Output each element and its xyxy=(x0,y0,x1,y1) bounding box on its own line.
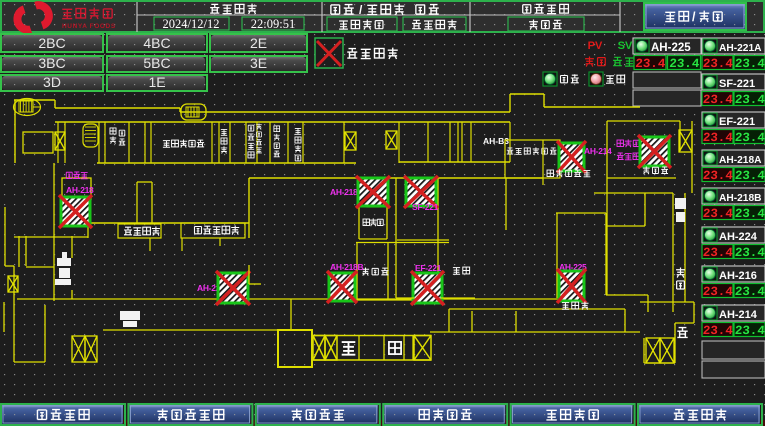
svg-text:1E: 1E xyxy=(148,74,165,90)
svg-text:23.4: 23.4 xyxy=(734,207,765,221)
svg-text:23.4: 23.4 xyxy=(702,246,733,260)
svg-text:2BC: 2BC xyxy=(38,35,65,51)
svg-text:22:09:51: 22:09:51 xyxy=(251,17,295,31)
svg-text:AH-218A: AH-218A xyxy=(719,155,762,166)
svg-text:AH-214: AH-214 xyxy=(584,146,612,156)
svg-text:23.4: 23.4 xyxy=(702,207,733,221)
svg-text:23.4: 23.4 xyxy=(702,57,733,71)
svg-text:3BC: 3BC xyxy=(38,55,65,71)
svg-text:23.4: 23.4 xyxy=(734,93,765,107)
svg-text:23.4: 23.4 xyxy=(702,131,733,145)
svg-text:HUNYA FOODS: HUNYA FOODS xyxy=(62,23,116,30)
svg-text:SF-221: SF-221 xyxy=(412,202,439,212)
svg-text:/: / xyxy=(692,10,696,24)
svg-text:AH-218B: AH-218B xyxy=(719,193,761,204)
svg-text:2E: 2E xyxy=(250,35,267,51)
svg-text:23.4: 23.4 xyxy=(702,169,733,183)
svg-text:AH-218: AH-218 xyxy=(66,185,94,195)
svg-text:23.4: 23.4 xyxy=(702,285,733,299)
svg-text:2024/12/12: 2024/12/12 xyxy=(163,17,220,31)
svg-text:3E: 3E xyxy=(250,55,267,71)
svg-text:AH-214: AH-214 xyxy=(719,309,758,321)
svg-text:AH-218B: AH-218B xyxy=(330,262,363,272)
svg-text:EF-221: EF-221 xyxy=(719,116,755,128)
svg-text:SV: SV xyxy=(618,40,633,52)
svg-text:PV: PV xyxy=(588,40,603,52)
svg-text:23.4: 23.4 xyxy=(702,324,733,338)
svg-text:AH-221A: AH-221A xyxy=(719,43,762,54)
svg-text:5BC: 5BC xyxy=(143,55,170,71)
svg-text:AH-216: AH-216 xyxy=(719,270,757,282)
svg-text:23.4: 23.4 xyxy=(734,285,765,299)
svg-text:4BC: 4BC xyxy=(143,35,170,51)
svg-text:23.4: 23.4 xyxy=(635,57,666,71)
svg-text:3D: 3D xyxy=(43,74,61,90)
svg-text:23.4: 23.4 xyxy=(734,131,765,145)
svg-text:SF-221: SF-221 xyxy=(719,78,755,90)
svg-text:23.4: 23.4 xyxy=(734,169,765,183)
svg-text:23.4: 23.4 xyxy=(669,57,700,71)
svg-text:23.4: 23.4 xyxy=(702,93,733,107)
svg-text:23.4: 23.4 xyxy=(734,324,765,338)
svg-text:23.4: 23.4 xyxy=(734,57,765,71)
svg-text:23.4: 23.4 xyxy=(734,246,765,260)
svg-text:AH-224: AH-224 xyxy=(719,231,758,243)
svg-text:AH-225: AH-225 xyxy=(651,42,691,54)
